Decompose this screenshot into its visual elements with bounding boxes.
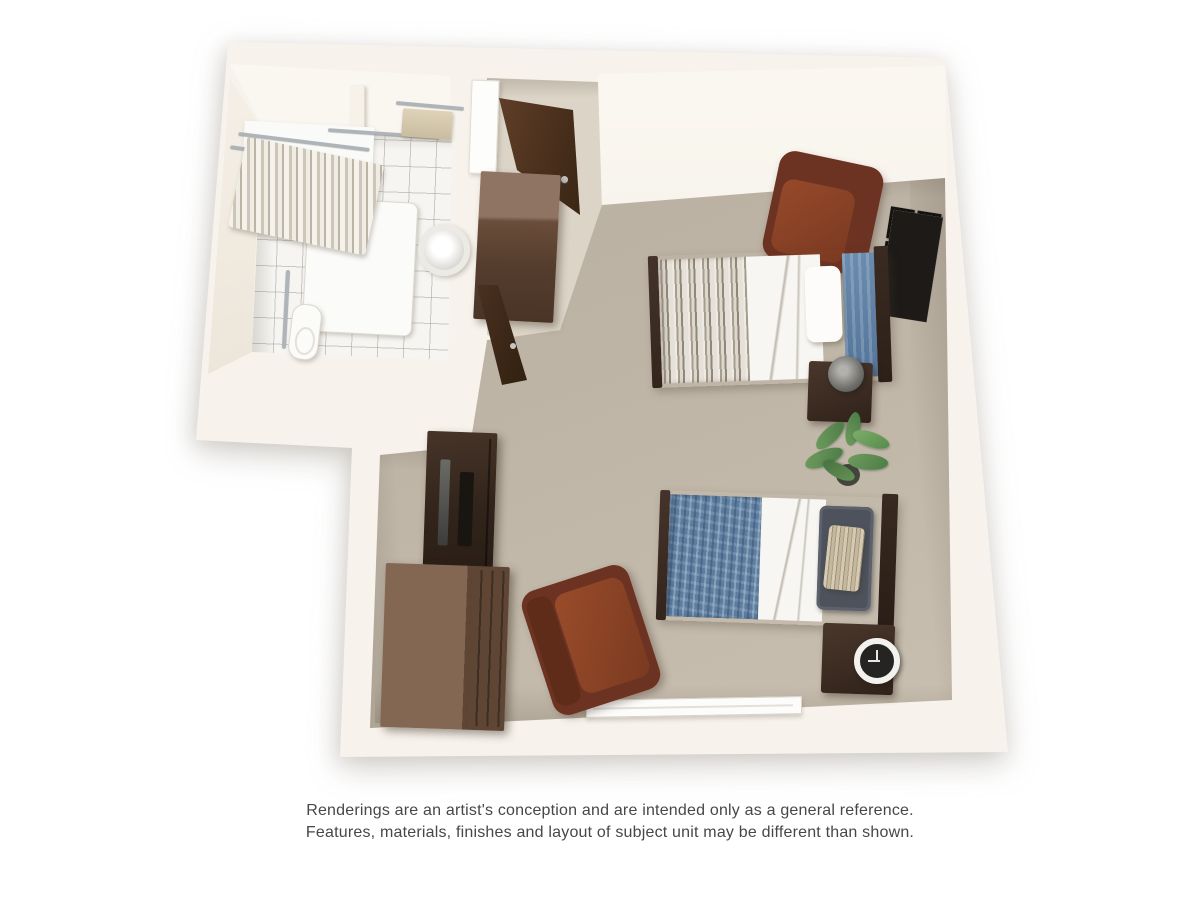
dresser-drawer-seams [466,570,505,727]
towel [401,108,453,139]
disclaimer-text: Renderings are an artist's conception an… [10,800,1200,844]
floor-plan [190,38,1020,768]
clock-hand [868,660,880,662]
clock [854,638,900,684]
bed-upper-pillow [804,266,843,343]
tv-screen-edge [438,459,451,545]
bathroom-door-knob [510,343,516,349]
bathroom-door-leaf [477,285,529,387]
plant-leaf [851,425,892,453]
disclaimer-line-2: Features, materials, finishes and layout… [10,822,1200,844]
bed-upper-striped-blanket [658,257,750,384]
table-lamp [828,356,864,392]
entry-door-jamb [468,80,499,175]
window-sill-line [593,704,793,709]
pedestal-sink [418,224,470,276]
tv-cabinet [423,431,498,575]
bed-lower-blue-blanket [666,494,762,619]
dresser [380,563,510,731]
potted-plant [802,420,892,500]
twin-bed-lower [656,490,898,628]
entry-door-knob [561,176,568,183]
disclaimer-line-1: Renderings are an artist's conception an… [10,800,1200,822]
cabinet-panel [457,472,474,546]
bathroom-door [477,285,529,387]
picture-frame [902,280,931,315]
bed-lower-striped-pillow [823,525,865,592]
floor-plan-rendering: Renderings are an artist's conception an… [0,0,1200,900]
toilet-seat [293,326,316,356]
cabinet-seam [485,439,491,567]
